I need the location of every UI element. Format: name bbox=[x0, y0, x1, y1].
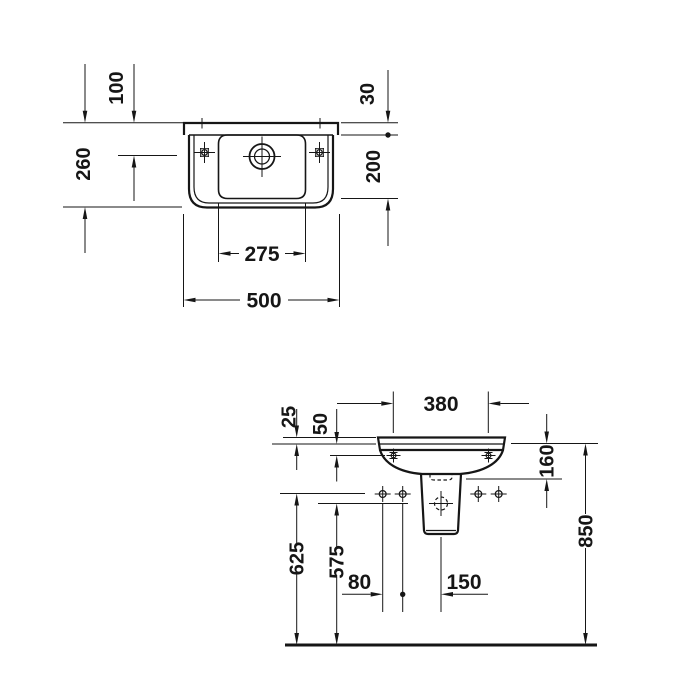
plan-dim-200: 200 bbox=[363, 150, 390, 246]
dim-label-260: 260 bbox=[73, 147, 95, 180]
dim-label-500: 500 bbox=[246, 290, 281, 313]
plan-dim-500: 500 bbox=[184, 290, 340, 313]
tap-hole-marker-left bbox=[194, 142, 215, 163]
plan-extension-lines bbox=[63, 123, 398, 307]
elev-dim-850: 850 bbox=[576, 444, 598, 646]
dim-label-380: 380 bbox=[423, 393, 458, 416]
plan-dim-275: 275 bbox=[219, 243, 306, 266]
dim-label-625: 625 bbox=[287, 542, 309, 575]
elev-dim-575: 575 bbox=[327, 504, 349, 646]
dim-label-25: 25 bbox=[279, 406, 301, 428]
dim-label-50: 50 bbox=[310, 413, 332, 435]
elev-dim-50: 50 bbox=[310, 409, 339, 482]
faucet-hole-icon bbox=[243, 137, 281, 178]
elev-dim-160: 160 bbox=[537, 414, 559, 508]
dim-label-200: 200 bbox=[363, 150, 385, 183]
dim-label-30: 30 bbox=[357, 83, 379, 105]
elev-dim-150: 150 bbox=[441, 571, 488, 597]
plan-dim-100: 100 bbox=[106, 64, 136, 201]
drain-center-marker bbox=[429, 491, 453, 516]
elev-dim-80: 80 bbox=[342, 571, 405, 597]
dim-label-150: 150 bbox=[446, 571, 481, 594]
elev-dim-380: 380 bbox=[337, 393, 529, 416]
technical-drawing: 100 260 30 200 275 bbox=[0, 0, 700, 700]
plan-dim-260: 260 bbox=[73, 64, 95, 253]
dim-label-100: 100 bbox=[106, 71, 128, 104]
tap-hole-marker-right bbox=[309, 142, 330, 163]
plan-dim-30: 30 bbox=[357, 70, 391, 138]
technical-drawing-page: 100 260 30 200 275 bbox=[0, 0, 700, 700]
dim-label-275: 275 bbox=[244, 243, 279, 266]
plan-basin-outline bbox=[184, 118, 338, 208]
dim-label-160: 160 bbox=[537, 444, 559, 477]
elevation-basin-outline bbox=[378, 438, 505, 535]
plan-view: 100 260 30 200 275 bbox=[63, 64, 398, 313]
dim-label-575: 575 bbox=[327, 545, 349, 578]
dim-label-80: 80 bbox=[348, 571, 371, 594]
elev-dim-625: 625 bbox=[287, 494, 309, 646]
elevation-view: 380 25 50 160 bbox=[272, 392, 598, 646]
dim-label-850: 850 bbox=[576, 514, 598, 547]
